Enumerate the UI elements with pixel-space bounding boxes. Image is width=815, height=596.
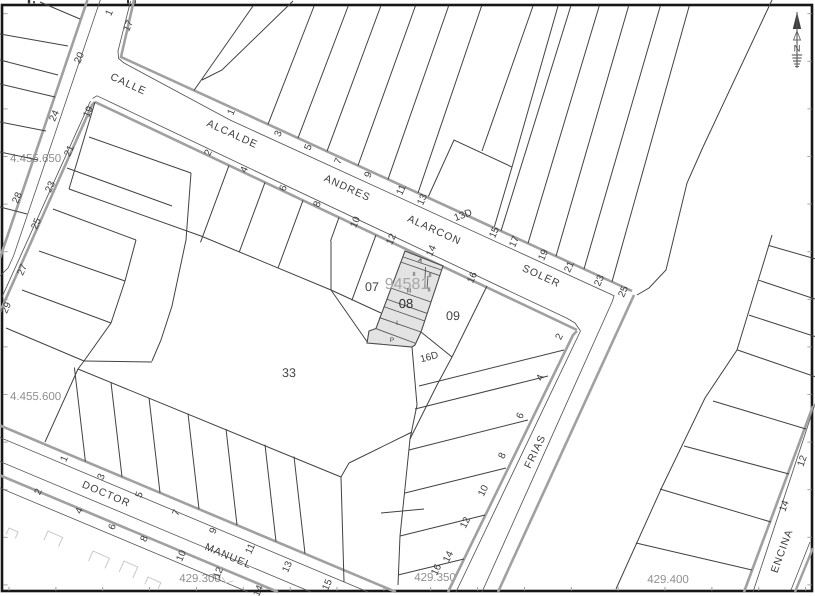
svg-text:N: N: [794, 44, 801, 55]
svg-text:4.455.600: 4.455.600: [10, 391, 61, 403]
svg-text:II: II: [427, 287, 431, 294]
svg-text:09: 09: [446, 309, 460, 323]
svg-text:08: 08: [399, 296, 413, 311]
svg-text:07: 07: [365, 280, 379, 294]
svg-text:33: 33: [282, 366, 296, 380]
svg-text:I: I: [396, 320, 398, 327]
svg-text:II: II: [412, 271, 416, 278]
svg-text:P: P: [390, 337, 394, 344]
svg-text:II: II: [428, 272, 432, 279]
svg-text:429.400: 429.400: [647, 574, 689, 586]
svg-text:III: III: [406, 288, 411, 295]
